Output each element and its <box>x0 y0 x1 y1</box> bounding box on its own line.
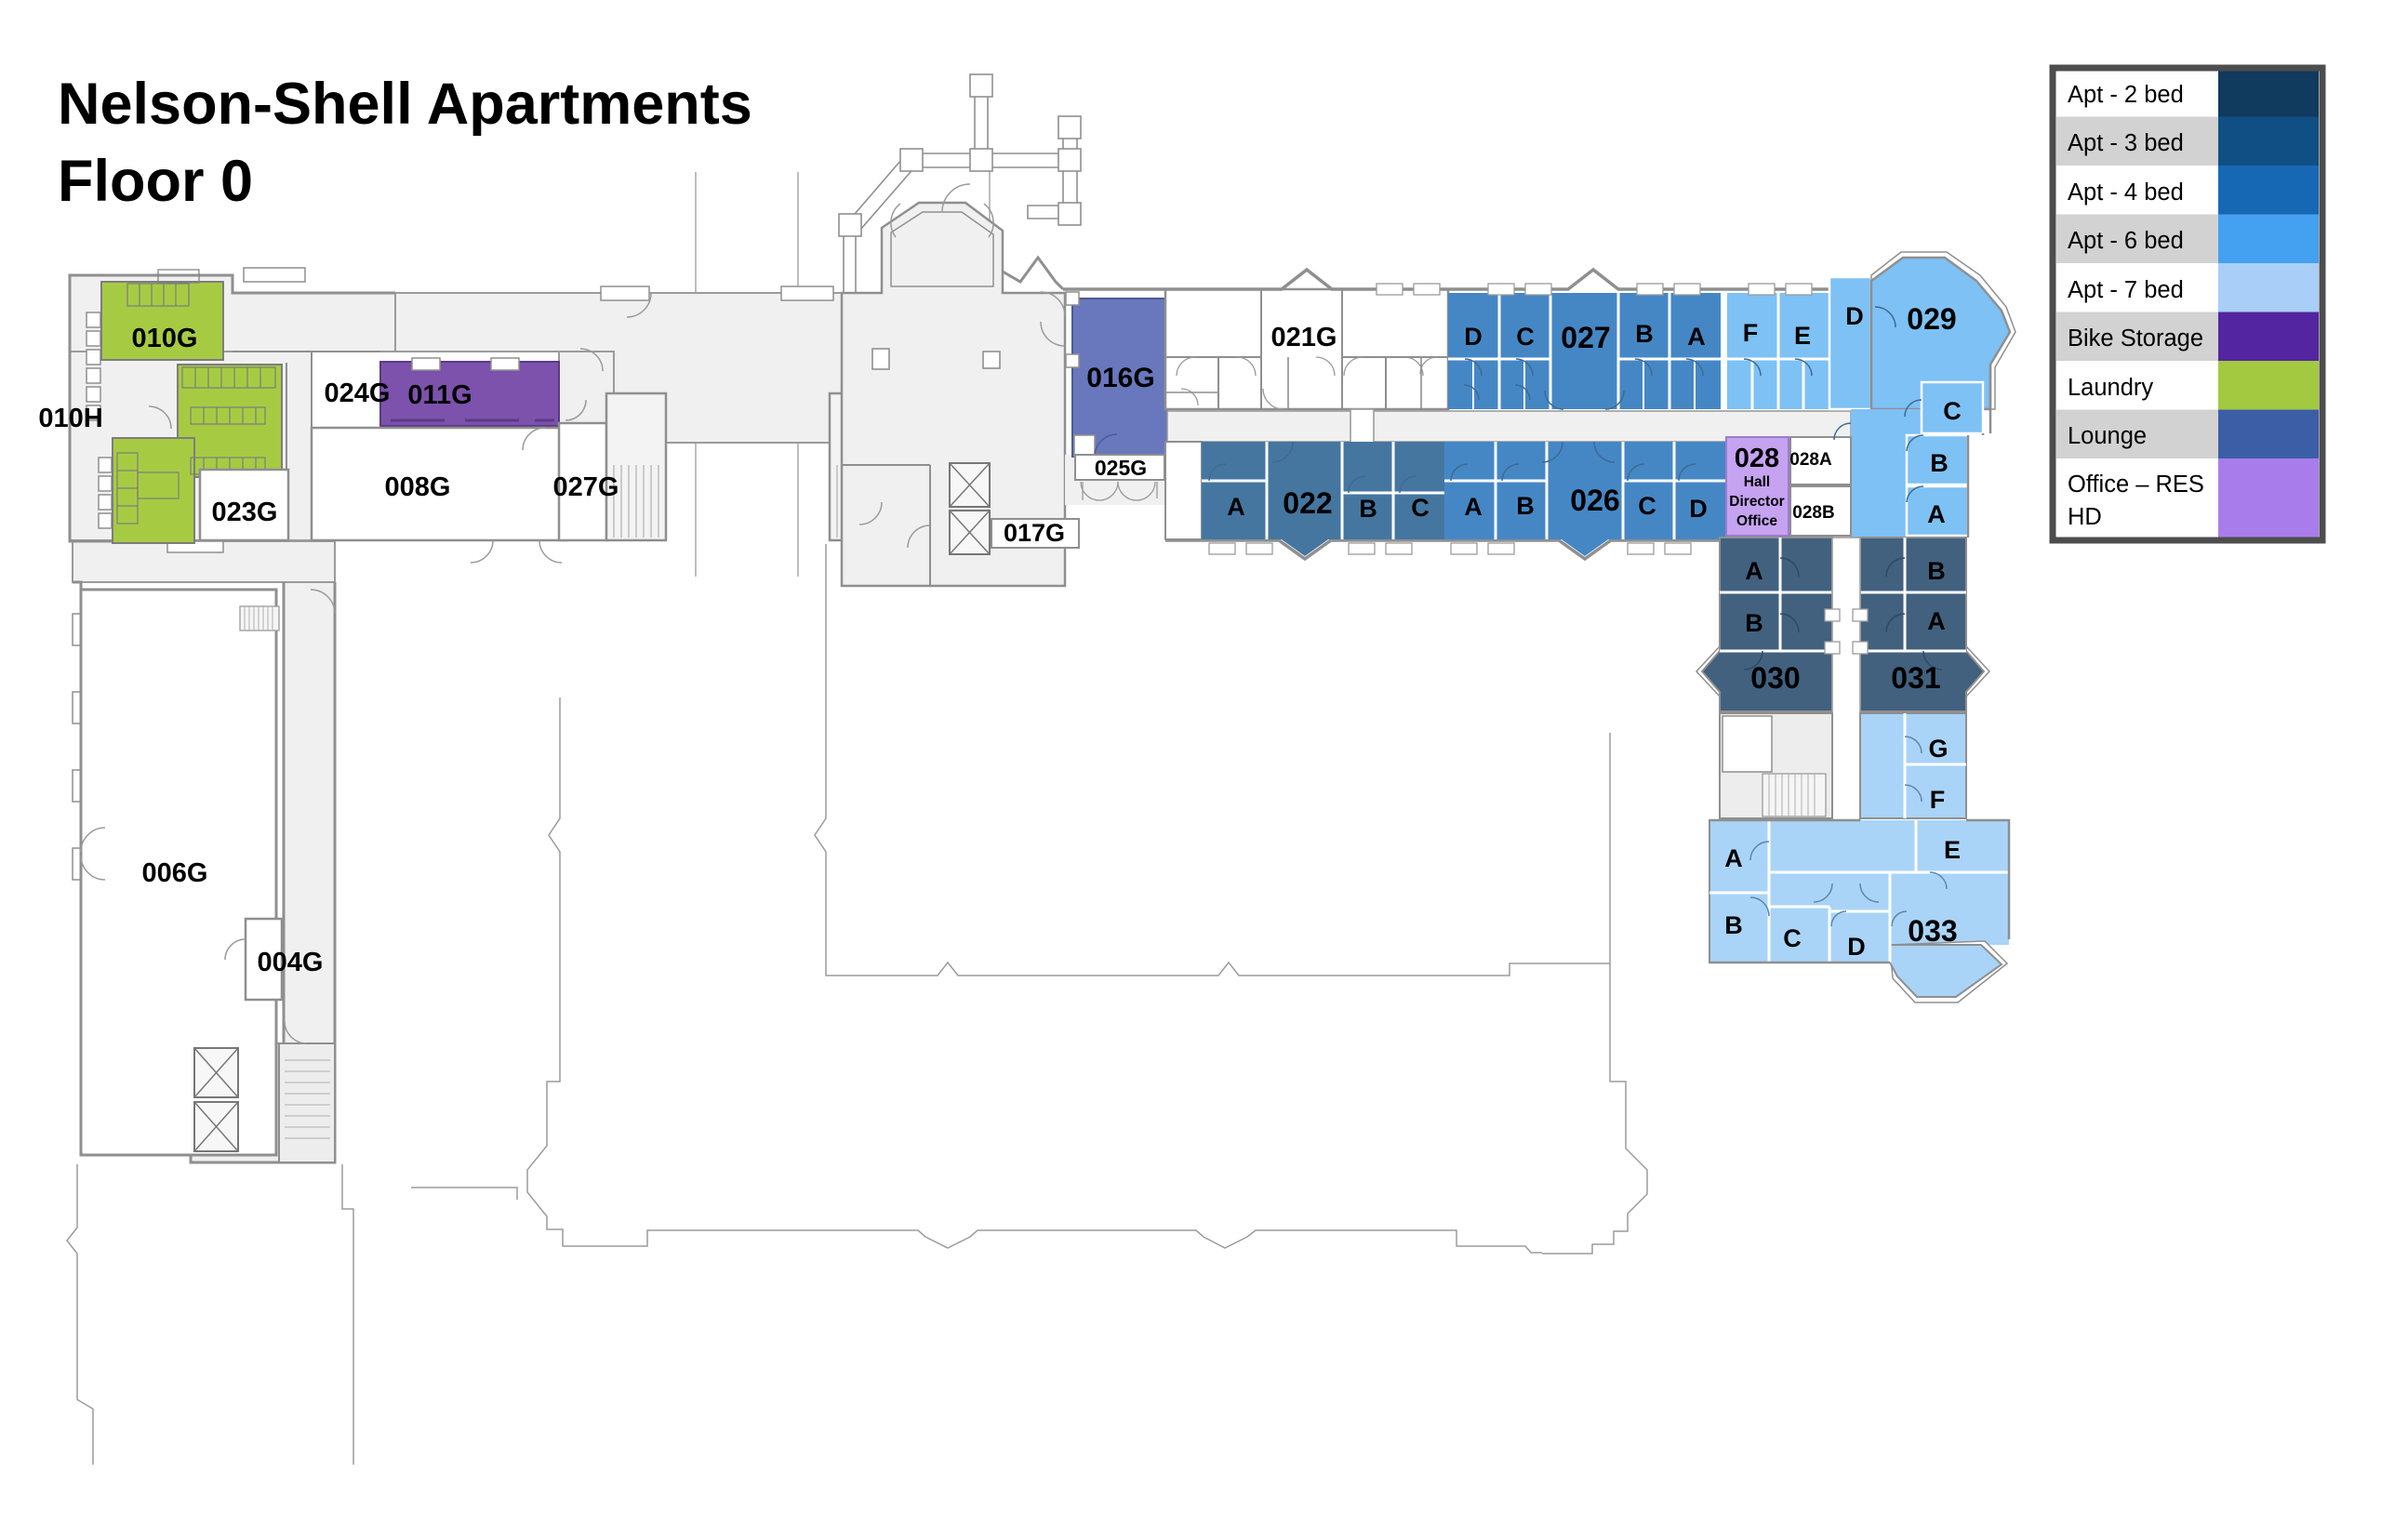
svg-text:016G: 016G <box>1086 363 1154 393</box>
svg-text:004G: 004G <box>258 948 324 977</box>
svg-text:Apt - 6 bed: Apt - 6 bed <box>2068 228 2184 254</box>
svg-text:Office – RES: Office – RES <box>2068 471 2204 498</box>
svg-text:B: B <box>1724 911 1743 939</box>
svg-text:006G: 006G <box>142 858 208 888</box>
svg-text:022: 022 <box>1283 486 1332 520</box>
svg-text:A: A <box>1227 493 1245 521</box>
svg-text:008G: 008G <box>385 472 451 502</box>
svg-text:C: C <box>1638 492 1656 520</box>
svg-text:Lounge: Lounge <box>2068 423 2147 449</box>
svg-text:C: C <box>1943 397 1962 425</box>
svg-text:030: 030 <box>1750 661 1800 695</box>
svg-text:G: G <box>1928 735 1948 763</box>
svg-text:025G: 025G <box>1095 456 1147 480</box>
svg-text:Floor 0: Floor 0 <box>58 149 253 214</box>
svg-text:A: A <box>1745 557 1763 585</box>
svg-text:HD: HD <box>2068 504 2102 530</box>
svg-text:B: B <box>1516 492 1535 520</box>
svg-text:027: 027 <box>1561 321 1610 354</box>
svg-text:033: 033 <box>1908 914 1957 948</box>
svg-text:B: B <box>1359 495 1377 523</box>
svg-text:027G: 027G <box>553 472 619 502</box>
svg-text:Apt - 7 bed: Apt - 7 bed <box>2068 277 2184 303</box>
svg-text:A: A <box>1687 323 1706 351</box>
svg-text:F: F <box>1743 319 1759 347</box>
svg-text:028B: 028B <box>1792 503 1834 523</box>
svg-text:A: A <box>1927 607 1946 635</box>
svg-text:Hall: Hall <box>1744 474 1770 490</box>
svg-text:D: D <box>1689 495 1708 523</box>
svg-text:D: D <box>1845 302 1864 330</box>
svg-text:021G: 021G <box>1271 323 1337 352</box>
svg-text:Apt - 2 bed: Apt - 2 bed <box>2068 82 2184 108</box>
svg-text:B: B <box>1927 557 1946 585</box>
svg-text:031: 031 <box>1891 661 1940 695</box>
svg-text:Apt - 4 bed: Apt - 4 bed <box>2068 179 2184 206</box>
svg-text:F: F <box>1930 786 1946 814</box>
svg-text:Nelson-Shell Apartments: Nelson-Shell Apartments <box>58 72 752 137</box>
svg-text:Apt - 3 bed: Apt - 3 bed <box>2068 130 2184 156</box>
svg-text:Office: Office <box>1736 513 1777 529</box>
svg-text:A: A <box>1464 493 1483 521</box>
svg-text:026: 026 <box>1570 484 1619 517</box>
svg-text:A: A <box>1724 844 1743 872</box>
svg-text:D: D <box>1464 323 1483 351</box>
svg-text:Bike Storage: Bike Storage <box>2068 325 2203 352</box>
svg-text:B: B <box>1745 609 1763 637</box>
svg-text:Director: Director <box>1729 494 1784 510</box>
svg-text:011G: 011G <box>407 380 472 410</box>
svg-text:Laundry: Laundry <box>2068 375 2153 401</box>
svg-text:E: E <box>1794 322 1811 350</box>
svg-text:010G: 010G <box>132 324 198 353</box>
svg-text:B: B <box>1635 320 1654 348</box>
svg-text:C: C <box>1516 323 1535 351</box>
svg-text:D: D <box>1847 933 1866 961</box>
svg-text:028: 028 <box>1735 444 1779 473</box>
svg-text:C: C <box>1783 924 1802 952</box>
svg-text:017G: 017G <box>1004 519 1065 547</box>
svg-text:E: E <box>1944 836 1961 864</box>
svg-text:024G: 024G <box>325 378 391 408</box>
svg-text:010H: 010H <box>38 404 102 433</box>
svg-text:A: A <box>1927 500 1946 528</box>
svg-text:028A: 028A <box>1789 450 1832 470</box>
svg-text:B: B <box>1930 449 1949 477</box>
svg-text:C: C <box>1411 494 1430 522</box>
svg-text:023G: 023G <box>212 498 278 527</box>
svg-text:029: 029 <box>1907 302 1956 336</box>
